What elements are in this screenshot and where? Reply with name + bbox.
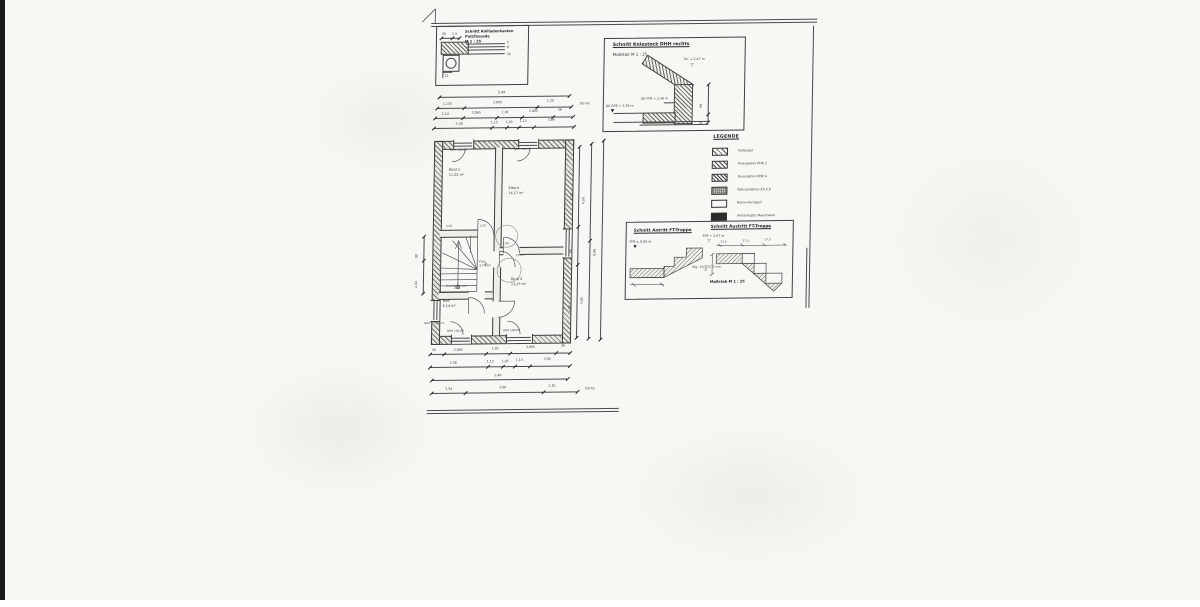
dim-bot-b0: 2,38 xyxy=(450,362,457,366)
dim-right-2: 2,04 xyxy=(569,305,573,312)
kniestock-detail-box: Schnitt Kniestock DHH rechts Maßstab M 1… xyxy=(602,36,746,132)
antritt-title: Schnitt Antritt FT-Treppe xyxy=(634,227,692,233)
rollladen-dim-edge: 1,5 xyxy=(452,33,457,37)
kniestock-level-ridge: Tol. + 2,47 m xyxy=(684,58,705,62)
antritt-stair-drawing xyxy=(628,248,707,295)
legend-label-0: Vollziegel xyxy=(738,149,753,153)
dim-right-0: 2,53 xyxy=(570,193,574,200)
legend-title: LEGENDE xyxy=(713,135,739,141)
dim-right-5: 9,99 xyxy=(593,249,597,256)
dim-bot-a3: 3,065 xyxy=(526,346,535,350)
lintel-hatch xyxy=(441,42,469,55)
dim-top-r2-2: 1,29 xyxy=(547,100,554,104)
dim-bot-d1: 3,06 xyxy=(499,386,506,390)
drawing-content: Schnitt Rollladenkasten Putzfassade M 1 … xyxy=(0,0,1200,607)
level-marker-filled-icon: ▼ xyxy=(611,109,615,114)
rollladen-leader2: 8 xyxy=(507,46,509,50)
dim-bot-a2: 1,01 xyxy=(492,347,499,351)
austritt-title: Schnitt Austritt FT-Treppe xyxy=(711,223,771,229)
legend-swatch-ppw2 xyxy=(712,161,728,169)
level-marker-open-icon: ▽ xyxy=(690,63,694,68)
dim-bot-b3: 1,13 xyxy=(516,359,523,363)
sheet-bottom-line-2 xyxy=(427,411,619,414)
dim-left-1: 2,04 xyxy=(415,281,419,288)
stair-details-box: Schnitt Antritt FT-Treppe Schnitt Austri… xyxy=(625,220,794,300)
dim-left-0: 88 xyxy=(415,254,419,258)
rollladen-leader3: 36 xyxy=(507,53,511,57)
brh-top-2: BRH 102,06 xyxy=(514,148,531,152)
room-eltern-name: Eltern xyxy=(508,186,519,190)
brh-top-1: BRH 102,06 xyxy=(450,149,467,153)
legend-label-2: Porenbeton PPW 4 xyxy=(738,175,767,179)
room-eltern-area: 14,17 m² xyxy=(508,191,524,195)
dim-bot-a4: 36 xyxy=(561,345,565,349)
room-kind1-area: 11,22 m² xyxy=(449,173,465,177)
dim-top-side-label: Decke xyxy=(580,102,590,106)
inner-dim-4: 88 xyxy=(485,262,488,266)
inner-dim-1: 1,01 xyxy=(480,224,486,227)
legend-label-1: Porenbeton PPW 2 xyxy=(738,162,767,166)
dim-top-r3-1: 2,065 xyxy=(472,111,481,115)
rollladen-dim-bottom: 12 xyxy=(444,75,448,79)
dim-bot-a0: 36 xyxy=(432,349,436,353)
dim-top-r4-3: 1,13 xyxy=(520,120,527,124)
dim-top-r3-0: 1,14 xyxy=(442,113,449,117)
dim-bottom-side-label: Decke xyxy=(585,387,595,391)
dim-top-r4-0: 2,38 xyxy=(456,123,463,127)
dim-top-r3-3: 2,065 xyxy=(529,110,538,114)
sheet-right-border-2 xyxy=(805,248,807,308)
stair-note: Stg. 16,7/27,5 cm xyxy=(692,266,721,270)
floor-plan: Kind 1 11,22 m² Eltern 14,17 m² Kind 2 1… xyxy=(431,139,572,343)
legend-swatch-ks xyxy=(711,187,727,195)
dim-top-r2-1: 3,065 xyxy=(493,101,502,105)
rollladen-detail-box: Schnitt Rollladenkasten Putzfassade M 1 … xyxy=(435,25,529,86)
dim-right-4: 4,88 xyxy=(581,297,585,304)
kniestock-dim-upper: 88 xyxy=(700,104,704,108)
dim-top-r4-4: 3,06 xyxy=(548,119,555,123)
kniestock-title: Schnitt Kniestock DHH rechts xyxy=(613,42,690,48)
scanned-drawing-page: Schnitt Rollladenkasten Putzfassade M 1 … xyxy=(0,0,1200,600)
dim-bot-c0: 5,49 xyxy=(494,374,501,378)
room-kind1-name: Kind 1 xyxy=(449,168,460,172)
dim-right-1: 88 xyxy=(570,249,574,253)
rollladen-title-line2: Putzfassade xyxy=(465,34,490,39)
austritt-level: FFB + 2,67 m xyxy=(703,235,725,239)
dim-top-r4-2: 1,05 xyxy=(506,121,513,125)
legend-swatch-ppw4 xyxy=(712,174,728,182)
legend-swatch-fertigteil xyxy=(711,200,727,208)
kniestock-scale: Maßstab M 1 : 25 xyxy=(613,53,648,58)
rollladen-dim-width: 36 xyxy=(442,33,446,37)
brh-bottom-1: BRH 100,06 xyxy=(447,330,464,334)
dim-top-r4-1: 1,13 xyxy=(491,121,498,125)
inner-dim-5: 2,38 xyxy=(454,287,460,290)
legend-swatch-vollziegel xyxy=(712,148,728,156)
sheet-right-border xyxy=(808,26,814,308)
legend-swatch-mauerwerk xyxy=(711,213,727,221)
knee-wall-hatch xyxy=(673,84,693,124)
dim-bot-a1: 2,065 xyxy=(454,349,463,353)
kniestock-dim-lower: 18 xyxy=(700,121,704,125)
dim-top-r2-0: 1,135 xyxy=(443,103,452,107)
room-bad-area: 6,14 m² xyxy=(443,304,456,308)
brh-bottom-2: BRH 100,06 xyxy=(503,329,520,333)
room-bad-name: Bad xyxy=(443,299,450,303)
brh-left: BRH 77/59 cm xyxy=(424,322,444,326)
rollladen-title-line1: Schnitt Rollladenkasten xyxy=(465,29,513,34)
stair-scale: Maßstab M 1 : 25 xyxy=(710,279,745,284)
dim-bot-d0: 1,54 xyxy=(445,388,452,392)
dim-top-r3-4: 36 xyxy=(558,109,562,113)
dim-right-3: 4,06 xyxy=(582,197,586,204)
legend-label-5: Hinterlegtes Mauerwerk xyxy=(737,214,775,218)
dim-bot-d2: 1,30 xyxy=(548,385,555,389)
dim-top-r1-0: 5,49 xyxy=(498,91,505,95)
kniestock-level-ffb: OK FFB + 2,36 m xyxy=(641,97,668,101)
room-kind2-name: Kind 2 xyxy=(511,277,522,281)
room-kind2-area: 13,23 m² xyxy=(511,282,527,286)
dim-bot-b2: 1,05 xyxy=(502,360,509,364)
inner-dim-0: 2,26 xyxy=(446,225,452,228)
inner-dim-3: 1,135 xyxy=(515,254,523,257)
dim-bot-b4: 3,06 xyxy=(544,358,551,362)
legend-label-4: Beton-Fertigteil xyxy=(737,201,762,205)
legend-label-3: Kalksandstein KS 4,0 xyxy=(737,188,770,192)
legend: LEGENDE Vollziegel Porenbeton PPW 2 Pore… xyxy=(711,134,803,227)
inner-dim-2: 2,04 xyxy=(503,242,509,245)
dim-bot-b1: 1,13 xyxy=(487,360,494,364)
dim-top-r3-2: 1,01 xyxy=(502,111,509,115)
